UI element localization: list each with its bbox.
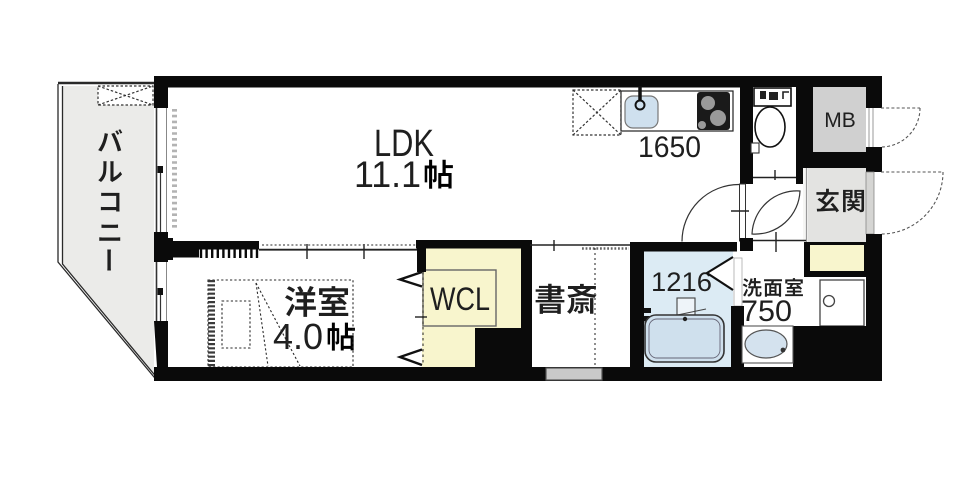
svg-text:MB: MB <box>824 109 856 132</box>
svg-text:750: 750 <box>741 295 792 328</box>
svg-text:1216: 1216 <box>651 267 712 297</box>
svg-text:11.1: 11.1 <box>354 154 421 195</box>
svg-text:1650: 1650 <box>638 131 701 164</box>
svg-text:WCL: WCL <box>430 281 490 317</box>
svg-text:4.0: 4.0 <box>273 316 323 357</box>
